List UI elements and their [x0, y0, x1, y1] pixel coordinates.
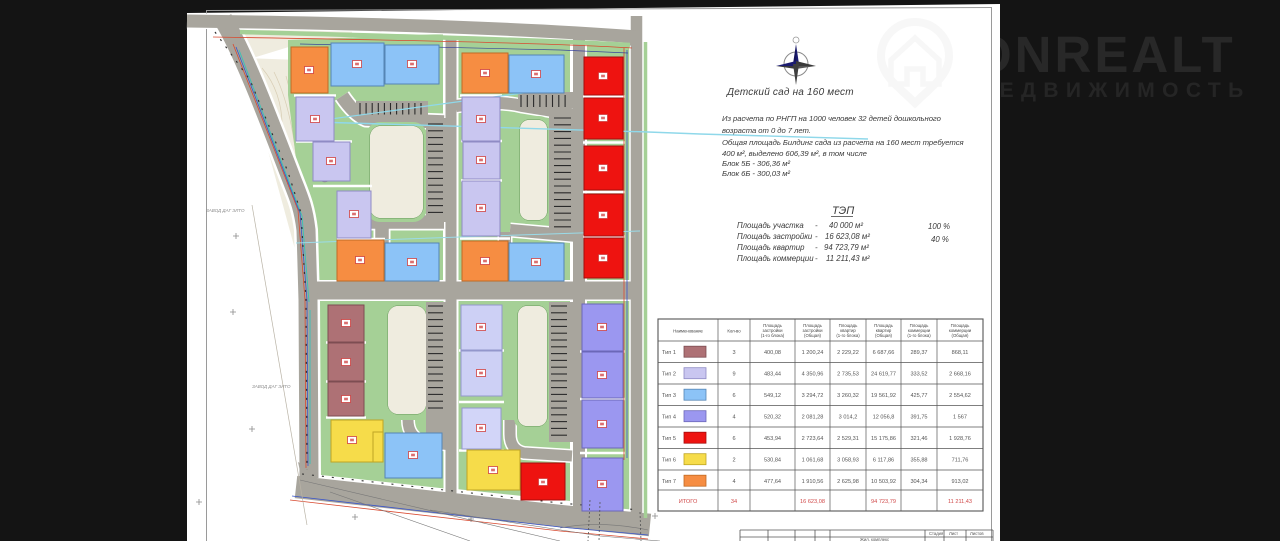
svg-text:-: - [815, 232, 818, 241]
svg-text:2 529,31: 2 529,31 [837, 436, 859, 442]
svg-text:6 117,86: 6 117,86 [873, 458, 894, 464]
svg-text:94 723,79 м²: 94 723,79 м² [824, 243, 869, 252]
svg-text:2 081,28: 2 081,28 [802, 415, 824, 421]
svg-text:2: 2 [732, 458, 735, 464]
svg-text:530,84: 530,84 [764, 458, 781, 464]
svg-text:321,46: 321,46 [910, 436, 927, 442]
svg-text:289,37: 289,37 [910, 350, 927, 356]
svg-text:4: 4 [732, 479, 735, 485]
svg-text:304,34: 304,34 [910, 479, 927, 485]
svg-text:3 260,32: 3 260,32 [837, 393, 859, 399]
svg-text:868,11: 868,11 [952, 350, 969, 356]
svg-text:Блок 5Б - 306,36 м²: Блок 5Б - 306,36 м² [722, 159, 791, 168]
svg-text:Тип 5: Тип 5 [662, 436, 676, 442]
svg-text:Тип 2: Тип 2 [662, 372, 676, 378]
svg-text:2 735,53: 2 735,53 [837, 372, 859, 378]
svg-text:Блок 6Б - 300,03 м²: Блок 6Б - 300,03 м² [722, 169, 791, 178]
svg-text:(1-го блока): (1-го блока) [761, 333, 785, 338]
svg-text:3 294,72: 3 294,72 [802, 393, 824, 399]
svg-text:ONREALT: ONREALT [972, 26, 1236, 83]
svg-text:6: 6 [732, 393, 735, 399]
svg-text:3 058,93: 3 058,93 [837, 458, 859, 464]
svg-text:Тип 3: Тип 3 [662, 393, 676, 399]
svg-text:11 211,43: 11 211,43 [948, 499, 972, 505]
svg-text:549,12: 549,12 [764, 393, 781, 399]
svg-text:Тип 1: Тип 1 [662, 350, 676, 356]
svg-text:40 000 м²: 40 000 м² [829, 221, 863, 230]
svg-text:453,94: 453,94 [764, 436, 781, 442]
svg-text:Жил. комплекс: Жил. комплекс [860, 537, 889, 541]
svg-text:ЗАВОД ДАГ ЭЛТО: ЗАВОД ДАГ ЭЛТО [206, 208, 245, 213]
svg-text:6 687,66: 6 687,66 [873, 350, 895, 356]
svg-text:(Общая): (Общая) [875, 333, 892, 338]
svg-text:-: - [815, 243, 818, 252]
svg-text:(1-го блока): (1-го блока) [907, 333, 931, 338]
svg-text:100 %: 100 % [928, 222, 950, 231]
svg-text:Листов: Листов [970, 531, 984, 536]
svg-text:4 350,96: 4 350,96 [802, 372, 824, 378]
svg-text:ЗАВОД ДАГ ЭЛТО: ЗАВОД ДАГ ЭЛТО [252, 384, 291, 389]
svg-text:Тип 4: Тип 4 [662, 415, 676, 421]
svg-text:40 %: 40 % [931, 235, 949, 244]
svg-text:Площадь участка: Площадь участка [737, 221, 804, 230]
svg-text:Тип 6: Тип 6 [662, 458, 676, 464]
svg-text:477,64: 477,64 [764, 479, 781, 485]
svg-text:Из расчета по РНГП на 1000 чел: Из расчета по РНГП на 1000 человек 32 де… [722, 114, 942, 123]
svg-text:10 503,92: 10 503,92 [871, 479, 896, 485]
svg-text:94 723,79: 94 723,79 [871, 499, 896, 505]
svg-text:НЕДВИЖИМОСТЬ: НЕДВИЖИМОСТЬ [977, 79, 1251, 102]
svg-text:355,88: 355,88 [910, 458, 927, 464]
svg-text:Лист: Лист [949, 531, 958, 536]
svg-text:2 625,98: 2 625,98 [837, 479, 859, 485]
svg-text:483,44: 483,44 [764, 372, 781, 378]
svg-text:391,75: 391,75 [910, 415, 927, 421]
svg-text:Детский сад на 160 мест: Детский сад на 160 мест [726, 87, 854, 98]
svg-text:Площадь застройки: Площадь застройки [737, 232, 813, 241]
svg-text:Площадь квартир: Площадь квартир [737, 243, 805, 252]
svg-text:ИТОГО: ИТОГО [679, 499, 698, 505]
svg-text:16 623,08: 16 623,08 [800, 499, 825, 505]
svg-text:4: 4 [732, 415, 735, 421]
svg-text:520,32: 520,32 [764, 415, 781, 421]
svg-text:913,02: 913,02 [951, 479, 968, 485]
svg-text:Общая площадь Билдинг сада из: Общая площадь Билдинг сада из расчета на… [722, 138, 964, 147]
svg-text:Тип 7: Тип 7 [662, 479, 676, 485]
svg-text:1 567: 1 567 [953, 415, 967, 421]
svg-text:3: 3 [732, 350, 735, 356]
svg-text:Кол-во: Кол-во [727, 329, 741, 334]
svg-text:12 056,8: 12 056,8 [873, 415, 895, 421]
svg-text:2 554,62: 2 554,62 [949, 393, 971, 399]
svg-text:(Общая): (Общая) [952, 333, 969, 338]
svg-text:9: 9 [732, 372, 735, 378]
svg-text:400 м², выделено 606,39 м², в: 400 м², выделено 606,39 м², в том числе [722, 149, 867, 158]
svg-text:6: 6 [732, 436, 735, 442]
svg-text:(Общая): (Общая) [804, 333, 821, 338]
svg-text:400,08: 400,08 [764, 350, 781, 356]
svg-text:1 910,56: 1 910,56 [802, 479, 824, 485]
svg-text:1 928,76: 1 928,76 [949, 436, 971, 442]
svg-text:333,52: 333,52 [910, 372, 927, 378]
svg-text:24 619,77: 24 619,77 [871, 372, 896, 378]
svg-text:34: 34 [731, 499, 737, 505]
svg-text:2 229,22: 2 229,22 [837, 350, 859, 356]
svg-text:ТЭП: ТЭП [832, 205, 854, 217]
svg-text:Площадь коммерции: Площадь коммерции [737, 254, 814, 263]
svg-text:3 014,2: 3 014,2 [839, 415, 858, 421]
svg-text:16 623,08 м²: 16 623,08 м² [825, 232, 870, 241]
svg-text:15 175,86: 15 175,86 [871, 436, 896, 442]
svg-text:(1-го блока): (1-го блока) [836, 333, 860, 338]
svg-text:1 061,68: 1 061,68 [802, 458, 824, 464]
svg-text:2 723,64: 2 723,64 [802, 436, 824, 442]
svg-text:2 668,16: 2 668,16 [949, 372, 971, 378]
svg-text:Наименование: Наименование [673, 329, 703, 334]
svg-text:425,77: 425,77 [910, 393, 927, 399]
svg-text:возраста от 0 до 7 лет.: возраста от 0 до 7 лет. [722, 126, 811, 135]
svg-text:11 211,43 м²: 11 211,43 м² [826, 254, 870, 263]
svg-text:1 200,24: 1 200,24 [802, 350, 824, 356]
svg-text:Стадия: Стадия [929, 531, 943, 536]
svg-text:711,76: 711,76 [952, 458, 969, 464]
svg-text:19 561,92: 19 561,92 [871, 393, 896, 399]
svg-text:-: - [815, 254, 818, 263]
svg-text:-: - [815, 221, 818, 230]
